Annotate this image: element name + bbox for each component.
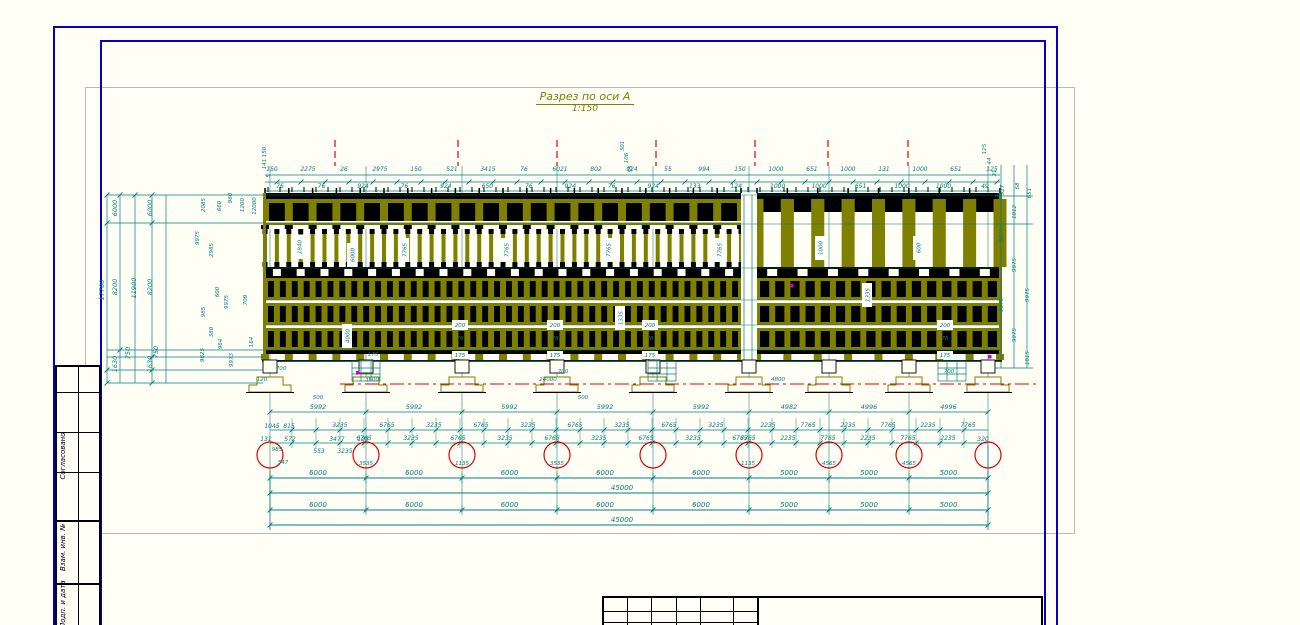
window [696,306,702,322]
window [957,331,966,347]
window [280,281,286,297]
shape [358,229,363,234]
dim-text: 521 [446,166,457,173]
dim-text: 9975 [1025,288,1031,302]
dim-text: 55 [628,165,634,172]
window [720,281,726,297]
window [589,331,595,347]
shape [715,229,720,234]
pier [668,229,672,267]
dim-text: 2235 [920,422,935,429]
window [554,281,560,297]
window [399,306,405,322]
dim-text: 500 [313,395,324,401]
dim-text: 960 [228,192,234,203]
magenta-mark [988,355,992,359]
dim-text: 2085 [201,198,207,212]
dim-text: 106 [624,152,630,163]
window [304,306,310,322]
shape [346,229,351,234]
window [601,331,607,347]
dim-text: 3235 [591,435,606,442]
pier [644,229,648,267]
shape [655,229,660,234]
window [423,331,429,347]
dim-text: 4800 [771,377,785,383]
belt-dash [666,225,674,229]
window [292,281,298,297]
window [530,306,536,322]
window [518,331,524,347]
dim-text: 651 [1027,188,1033,199]
shape [727,262,732,267]
lintel [976,199,993,212]
shape [654,269,662,276]
shape [321,269,329,276]
window [577,281,583,297]
window [661,281,667,297]
dim-text: 7765 [505,243,511,257]
pier [513,229,517,267]
window [363,306,369,322]
dim-text: 985 [272,447,283,453]
pier [691,229,695,267]
base-pier [380,354,388,360]
dim-text: 1000 [840,166,855,173]
shape [559,269,567,276]
shape [382,262,387,267]
window [494,306,500,322]
gost-side-column: Согласовано Взам. инв. № Подп. и дата [55,365,101,625]
stamp-line [757,598,759,625]
window [897,331,906,347]
base-band [265,350,741,354]
dim-text: 150 [262,146,268,157]
window [897,281,906,297]
window [866,331,875,347]
shape [691,262,696,267]
shape [393,262,398,267]
dim-text: 7765 [718,243,724,257]
window [316,306,322,322]
shape [405,262,410,267]
window [637,281,643,297]
shape [798,269,808,276]
belt-dash [475,225,483,229]
shape [703,262,708,267]
dim-text: 6000 [501,469,519,477]
window [732,281,738,297]
pier [287,229,291,267]
window [927,281,936,297]
dim-text: 6000 [692,469,710,477]
pier [584,229,588,267]
dim-text: 924 [357,183,369,190]
dim-text: 24000 [539,377,557,383]
window [411,281,417,297]
window [363,331,369,347]
base-pier [666,354,674,360]
dim-text: 76 [457,336,464,342]
shape [286,262,291,267]
dim-text: 700 [558,369,569,375]
left-edge [263,193,266,360]
dim-text: 6000 [309,469,327,477]
shape [465,262,470,267]
window [851,306,860,322]
pier [572,229,576,267]
window [269,203,285,221]
window [280,306,286,322]
window [806,281,815,297]
dim-text: 2235 [840,422,855,429]
shape [584,229,589,234]
window [351,306,357,322]
base-pier [594,354,602,360]
dim-text: 76 [552,336,559,342]
dim-text: 1000 [894,183,909,190]
dim-text: 1000 [811,183,826,190]
window [927,306,936,322]
dim-text: 1135 [455,461,469,467]
dim-text: 45000 [611,484,634,492]
window [317,203,333,221]
shape [703,229,708,234]
shape [828,269,838,276]
dim-text: 45000 [611,516,634,524]
window [578,203,594,221]
shape [453,229,458,234]
window [388,203,404,221]
window [518,281,524,297]
dim-text: 3535 [550,461,564,467]
base-pier [404,354,412,360]
belt-dash [332,225,340,229]
dim-text: 68 [1015,182,1021,189]
magenta-mark [790,284,794,288]
shape [512,262,517,267]
shape [620,262,625,267]
dim-text: 750 [124,347,132,359]
shape [265,221,741,223]
shape [441,229,446,234]
pier [680,229,684,267]
window [625,281,631,297]
window [589,306,595,322]
shape [560,262,565,267]
window [696,281,702,297]
lintel [855,199,872,212]
dim-text: 927 [1000,184,1006,195]
shape [701,269,709,276]
dim-text: 651 [806,166,817,173]
window [399,281,405,297]
window [721,203,737,221]
shape [620,229,625,234]
window [790,331,799,347]
shape [274,262,279,267]
window [458,306,464,322]
dim-text: 6765 [473,422,488,429]
window [316,281,322,297]
dim-text: 1000 [819,241,825,255]
shape [392,269,400,276]
dim-text: 1630 [111,356,119,373]
dim-text: 3235 [497,435,512,442]
window [708,331,714,347]
window [760,331,769,347]
belt-dash [689,225,697,229]
window [506,281,512,297]
window [363,281,369,297]
pier [334,229,338,267]
shape [405,229,410,234]
shape [298,229,303,234]
window [673,306,679,322]
window [697,203,713,221]
window [790,306,799,322]
dim-text: 4982 [781,403,798,411]
dim-text: 2235 [940,435,955,442]
belt-dash [404,225,412,229]
shape [334,229,339,234]
dim-text: 6000 [596,501,614,509]
window [732,331,738,347]
dim-text: 76 [318,183,326,190]
window [625,331,631,347]
dim-text: 5992 [693,403,710,411]
drawing-title-text: Разрез по оси А [536,90,635,105]
drawing-title: Разрез по оси А [450,90,720,105]
window [806,306,815,322]
shape [417,229,422,234]
belt-dash [451,225,459,229]
window [661,306,667,322]
shape [678,269,686,276]
dim-text: 141 [262,159,268,170]
shape [298,262,303,267]
shape [310,229,315,234]
cad-viewport[interactable]: 1502275262975150521341576602180292455994… [0,0,1300,625]
window [339,306,345,322]
roof-slab [757,193,1000,199]
window [696,331,702,347]
window [821,331,830,347]
shape [512,229,517,234]
base-pier [844,354,852,360]
window [685,281,691,297]
window [351,281,357,297]
dim-text: 3235 [614,422,629,429]
pier [933,199,946,267]
belt-dash [642,225,650,229]
shape [524,229,529,234]
window [566,281,572,297]
dim-text: 924 [440,183,452,190]
window [806,331,815,347]
window [821,306,830,322]
window [387,331,393,347]
window [673,331,679,347]
belt-dash [380,225,388,229]
dim-text: 3235 [403,435,418,442]
window [927,331,936,347]
shape [334,262,339,267]
dim-text: 6765 [661,422,676,429]
shape [273,269,281,276]
shape [548,229,553,234]
shape [643,262,648,267]
dim-text: 5000 [860,469,878,477]
dim-text: 651 [855,183,866,190]
window [542,331,548,347]
window [613,331,619,347]
dim-text: 3235 [426,422,441,429]
belt-dash [618,225,626,229]
dim-text: 5000 [860,501,878,509]
dim-text: 3415 [480,166,495,173]
base-pier [285,354,293,360]
base-pier [570,354,578,360]
window [280,331,286,347]
shape [715,262,720,267]
window [436,203,452,221]
pier [872,199,885,267]
window [988,306,997,322]
base-pier [523,354,531,360]
dim-text: 12000 [252,197,258,215]
shape [582,269,590,276]
window [720,331,726,347]
dim-text: 200 [645,323,656,329]
shape [489,262,494,267]
dim-text: 380 [209,326,215,337]
shape [487,269,495,276]
window [673,281,679,297]
window [482,281,488,297]
window-row [265,278,741,300]
shape [631,262,636,267]
gost-divider [78,367,79,625]
dim-text: 9825 [200,348,206,362]
shape [274,229,279,234]
dim-text: 7765 [607,243,613,257]
window [292,306,298,322]
window [292,331,298,347]
window [530,281,536,297]
gost-label-podp: Подп. и дата [59,588,67,625]
dim-text: 5992 [597,403,614,411]
pier [549,229,553,267]
belt-dash [285,225,293,229]
base-pier [814,354,822,360]
dim-text: 175 [940,353,951,359]
dim-text: 802 [590,166,602,173]
window [304,331,310,347]
right-edge [999,193,1002,360]
window [836,331,845,347]
dim-text: 6765 [450,435,465,442]
dim-text: 553 [313,448,325,455]
pier [418,229,422,267]
shape [265,325,741,328]
dim-text: 120 [257,377,268,383]
pier [358,229,362,267]
window [518,306,524,322]
window [494,281,500,297]
pier [323,229,327,267]
shape [536,262,541,267]
dim-text: 547 [278,460,289,466]
shape [463,269,471,276]
base-pier [618,354,626,360]
dim-text: 1045 [264,423,279,430]
dim-text: 2235 [780,435,795,442]
dim-text: 3235 [685,435,700,442]
gost-label-vzam: Взам. инв. № [59,531,67,571]
dim-text: 55 [664,166,672,173]
dim-text: 2235 [860,435,875,442]
shape [725,269,733,276]
belt-dash [523,225,531,229]
dim-text: 5 [266,174,272,178]
window [339,281,345,297]
dim-text: 6021 [552,166,567,173]
belt-dash [309,225,317,229]
shape [767,269,777,276]
window [411,306,417,322]
window [882,306,891,322]
belt-dash [356,225,364,229]
dim-text: 600 [215,286,221,297]
lintel [794,199,811,212]
dim-text: 964 [218,338,224,349]
window [328,281,334,297]
shape [344,269,352,276]
pier [311,229,315,267]
shape [949,269,959,276]
pier [465,229,469,267]
pier [525,229,529,267]
shape [757,300,1000,303]
shape [889,269,899,276]
dim-text: 200 [940,323,951,329]
dim-text: 7765 [960,422,975,429]
pier [842,199,855,267]
window [637,306,643,322]
shape [655,262,660,267]
dim-text: 6000 [501,501,519,509]
dim-text: 6000 [405,501,423,509]
dim-text: 5000 [940,501,958,509]
shape [370,262,375,267]
floor-band [265,267,741,278]
shape [643,229,648,234]
window [760,306,769,322]
window-row [265,303,741,325]
dim-text: 301 [620,141,626,152]
shape [511,269,519,276]
dim-text: 5992 [406,403,423,411]
shape [631,229,636,234]
foundation-pier [822,360,836,373]
window [375,306,381,322]
shape [572,262,577,267]
dim-text: 7765 [740,435,755,442]
window [637,331,643,347]
shape [465,229,470,234]
dim-text: 994 [698,166,710,173]
